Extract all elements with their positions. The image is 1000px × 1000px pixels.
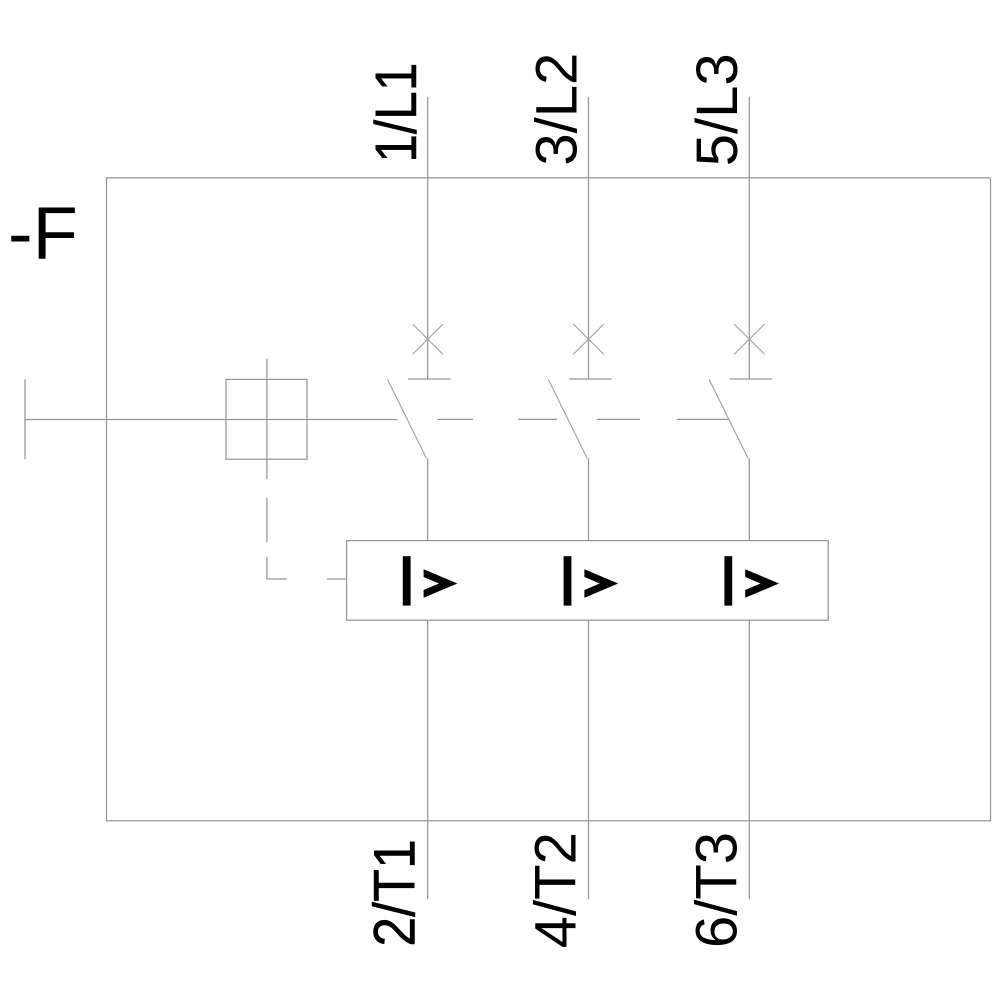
svg-text:-F: -F	[8, 192, 78, 275]
svg-text:3/L2: 3/L2	[525, 53, 590, 166]
svg-text:4/T2: 4/T2	[524, 832, 589, 948]
svg-text:2/T1: 2/T1	[362, 839, 427, 947]
svg-text:6/T3: 6/T3	[684, 832, 749, 948]
svg-text:1/L1: 1/L1	[364, 63, 429, 163]
svg-text:5/L3: 5/L3	[685, 53, 750, 166]
